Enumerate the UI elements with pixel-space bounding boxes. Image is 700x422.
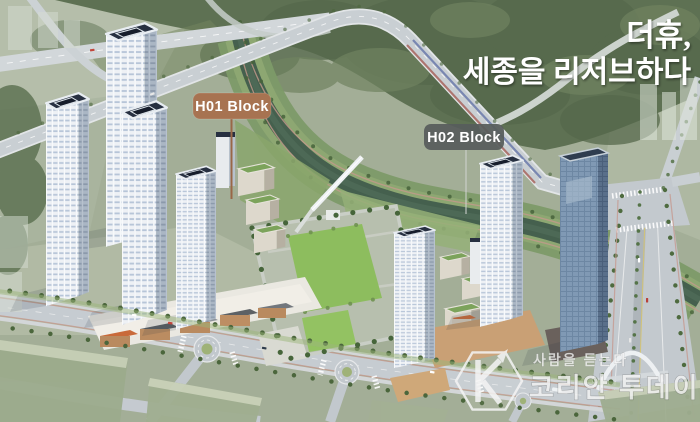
car bbox=[646, 298, 648, 303]
tower bbox=[122, 101, 167, 325]
watermark-tagline: 사람을 듣는다 bbox=[533, 352, 628, 368]
tower bbox=[394, 226, 435, 368]
tower bbox=[46, 93, 89, 306]
tower bbox=[480, 155, 523, 326]
car bbox=[638, 258, 640, 263]
headline-line1: 더휴, bbox=[626, 18, 691, 53]
scene-svg: H01 Block H02 Block 더휴, 세종을 리저브하다 사람을 듣는… bbox=[0, 0, 700, 422]
roundabout bbox=[194, 336, 220, 362]
glass-office-tower bbox=[560, 148, 608, 352]
aerial-rendering: H01 Block H02 Block 더휴, 세종을 리저브하다 사람을 듣는… bbox=[0, 0, 700, 422]
headline-line2: 세종을 리저브하다 bbox=[463, 56, 692, 89]
tower bbox=[176, 166, 216, 329]
h02-badge-text: H02 Block bbox=[427, 130, 501, 146]
watermark-name: 코리안 투데이 bbox=[529, 373, 700, 403]
car bbox=[629, 338, 631, 343]
h01-badge-text: H01 Block bbox=[195, 99, 269, 115]
roundabout bbox=[335, 360, 359, 384]
